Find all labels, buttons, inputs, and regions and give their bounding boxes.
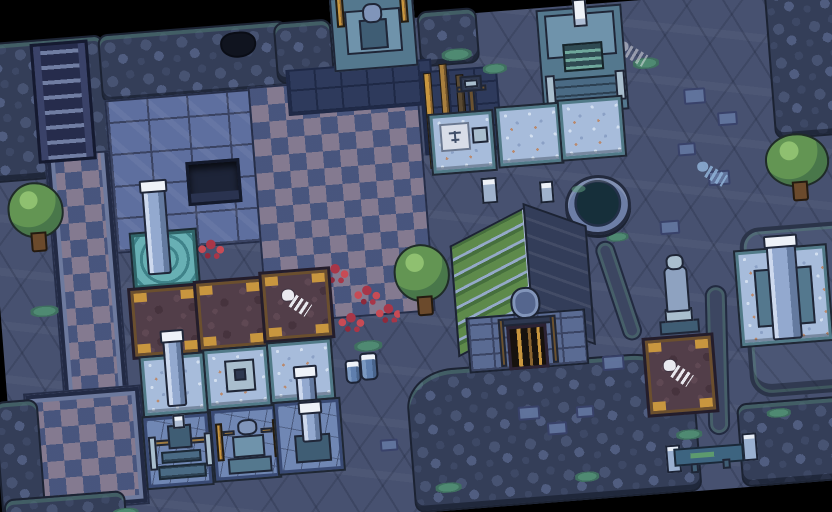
door[interactable]	[506, 323, 549, 370]
grave-plot[interactable]	[196, 279, 267, 350]
rune-mat	[439, 122, 471, 152]
stone-slab	[547, 421, 568, 436]
skeleton	[282, 288, 315, 324]
platform-with-pillar	[141, 353, 207, 416]
chimney	[480, 177, 498, 204]
cliff-edge-house-east	[593, 238, 645, 343]
pillar	[765, 239, 803, 341]
shrine-idol	[237, 418, 258, 436]
stone-slab	[518, 405, 541, 421]
jars[interactable]	[344, 350, 381, 387]
statue-torso	[663, 265, 691, 313]
platform-stone	[559, 97, 625, 160]
cliff-chasm-top-right	[763, 0, 832, 140]
shrine-idol	[361, 2, 383, 24]
red-coral	[195, 237, 233, 266]
stone-slab	[659, 220, 680, 236]
crypt-house	[447, 182, 598, 376]
moss-patch	[435, 482, 462, 494]
wood-post-left	[215, 423, 225, 461]
bench-leg	[722, 458, 731, 469]
tree	[5, 180, 66, 252]
platform-stone	[496, 104, 562, 167]
altar-step	[161, 449, 202, 464]
chimney	[539, 180, 555, 203]
jar	[359, 352, 379, 381]
stone-slab	[602, 354, 625, 371]
game-viewport	[0, 0, 832, 512]
moss-patch	[30, 305, 59, 318]
shrine-base	[228, 455, 273, 474]
moss-patch	[575, 471, 600, 483]
red-coral	[336, 311, 368, 335]
rune-block	[224, 358, 256, 392]
tree	[392, 242, 453, 316]
stone-slab	[576, 405, 595, 418]
stone-slab	[380, 438, 399, 451]
stone-slab	[677, 142, 696, 156]
altar-chest[interactable]	[562, 41, 604, 72]
grave-plot-skeleton[interactable]	[645, 336, 717, 415]
altar-step	[158, 463, 207, 481]
shrine-stepped-altar	[143, 413, 212, 488]
bench-leg	[690, 463, 699, 474]
shrine-pillar-plinth	[275, 399, 344, 474]
stone-slab	[717, 111, 738, 127]
stone-slab	[683, 87, 706, 105]
rune-face	[234, 368, 247, 381]
altar-candle	[172, 414, 185, 429]
stone-bench[interactable]	[664, 430, 759, 475]
glowing-pillar	[572, 0, 588, 27]
moss-patch	[112, 507, 139, 512]
skeleton-remains-decal-blue	[695, 157, 736, 198]
bench-seat	[673, 443, 744, 466]
grave-plot-skeleton[interactable]	[261, 269, 332, 340]
tilemap	[0, 0, 832, 512]
moss-patch	[606, 232, 629, 243]
wood-bar-left	[222, 430, 234, 436]
mesa-pillar-platform	[735, 245, 832, 346]
floor-pit	[185, 158, 242, 206]
ladder[interactable]	[30, 40, 97, 164]
skeleton	[663, 358, 696, 394]
shrine-fountain	[211, 406, 280, 481]
fountain-shrine-north	[328, 0, 423, 76]
shrine-mid	[232, 434, 266, 458]
sign-face	[464, 79, 479, 88]
stone-block	[471, 126, 488, 143]
platform-rune-block	[204, 346, 270, 409]
wood-bar-right	[260, 427, 272, 433]
tree	[763, 131, 832, 202]
platform-rune-mat	[429, 111, 495, 174]
stone-statue	[650, 246, 705, 337]
platform-with-pillar	[268, 339, 334, 402]
moss-patch	[766, 408, 791, 419]
moss-patch	[441, 47, 472, 61]
pillar	[300, 405, 323, 442]
moss-patch	[483, 63, 508, 75]
statue-head	[665, 253, 684, 270]
